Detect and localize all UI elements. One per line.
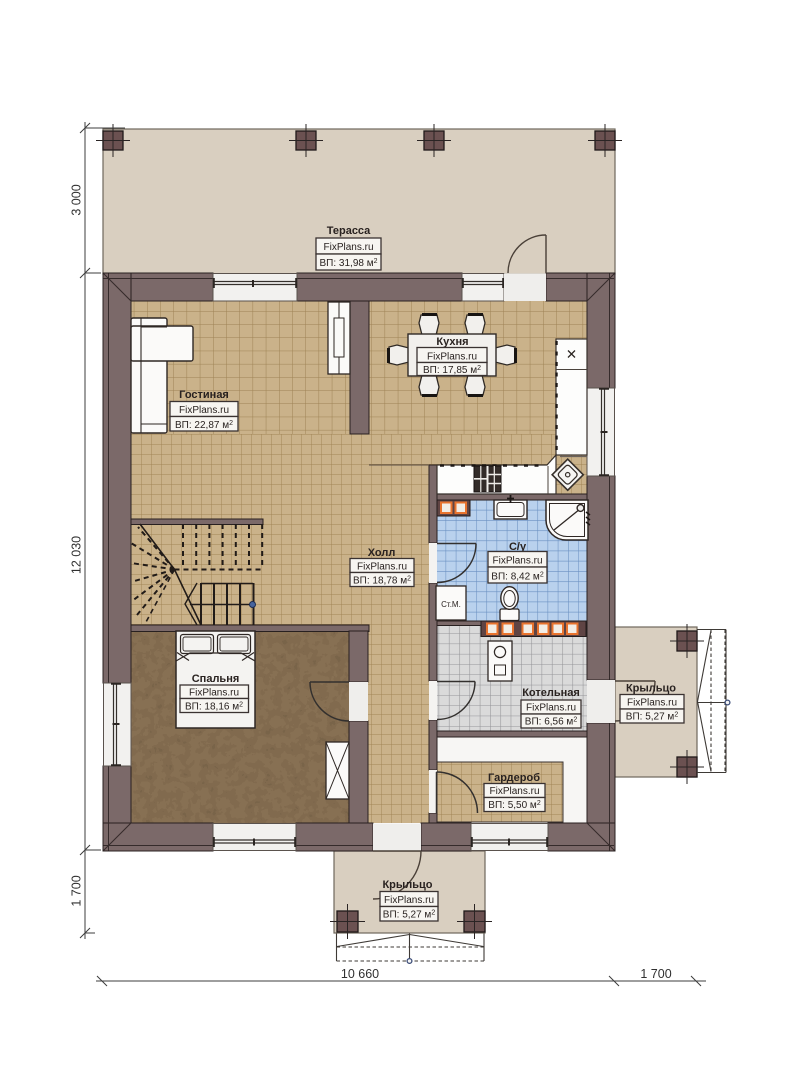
svg-text:FixPlans.ru: FixPlans.ru xyxy=(627,698,677,709)
svg-text:ВП: 5,27 м2: ВП: 5,27 м2 xyxy=(626,712,679,723)
svg-text:ВП: 18,78 м2: ВП: 18,78 м2 xyxy=(353,576,411,587)
svg-text:3 000: 3 000 xyxy=(69,184,83,215)
svg-text:FixPlans.ru: FixPlans.ru xyxy=(489,786,539,797)
svg-text:Гостиная: Гостиная xyxy=(179,389,229,401)
svg-text:Кухня: Кухня xyxy=(436,336,468,348)
svg-text:Крыльцо: Крыльцо xyxy=(626,683,676,695)
svg-text:12 030: 12 030 xyxy=(69,536,83,574)
svg-text:FixPlans.ru: FixPlans.ru xyxy=(492,556,542,567)
svg-text:ВП: 31,98 м2: ВП: 31,98 м2 xyxy=(320,258,378,269)
svg-text:FixPlans.ru: FixPlans.ru xyxy=(179,405,229,416)
svg-text:Ст.М.: Ст.М. xyxy=(441,600,461,609)
svg-text:FixPlans.ru: FixPlans.ru xyxy=(384,895,434,906)
svg-text:ВП: 22,87 м2: ВП: 22,87 м2 xyxy=(175,420,233,431)
svg-text:Котельная: Котельная xyxy=(522,687,580,699)
svg-text:ВП: 5,27 м2: ВП: 5,27 м2 xyxy=(383,910,436,921)
svg-text:ВП: 8,42 м2: ВП: 8,42 м2 xyxy=(491,572,544,583)
svg-text:ВП: 5,50 м2: ВП: 5,50 м2 xyxy=(488,800,541,811)
svg-text:ВП: 17,85 м2: ВП: 17,85 м2 xyxy=(423,365,481,376)
svg-text:FixPlans.ru: FixPlans.ru xyxy=(526,703,576,714)
svg-text:FixPlans.ru: FixPlans.ru xyxy=(357,562,407,573)
svg-text:Терасса: Терасса xyxy=(327,225,371,237)
svg-text:Крыльцо: Крыльцо xyxy=(382,879,432,891)
svg-text:FixPlans.ru: FixPlans.ru xyxy=(323,242,373,253)
svg-text:ВП: 6,56 м2: ВП: 6,56 м2 xyxy=(525,717,578,728)
svg-text:10 660: 10 660 xyxy=(341,967,379,981)
svg-text:Гардероб: Гардероб xyxy=(488,772,540,784)
svg-text:Спальня: Спальня xyxy=(192,673,240,685)
svg-text:FixPlans.ru: FixPlans.ru xyxy=(427,352,477,363)
svg-text:Холл: Холл xyxy=(368,547,396,559)
svg-text:1 700: 1 700 xyxy=(69,875,83,906)
svg-text:1 700: 1 700 xyxy=(640,967,671,981)
svg-text:FixPlans.ru: FixPlans.ru xyxy=(189,688,239,699)
svg-text:ВП: 18,16 м2: ВП: 18,16 м2 xyxy=(185,702,243,713)
